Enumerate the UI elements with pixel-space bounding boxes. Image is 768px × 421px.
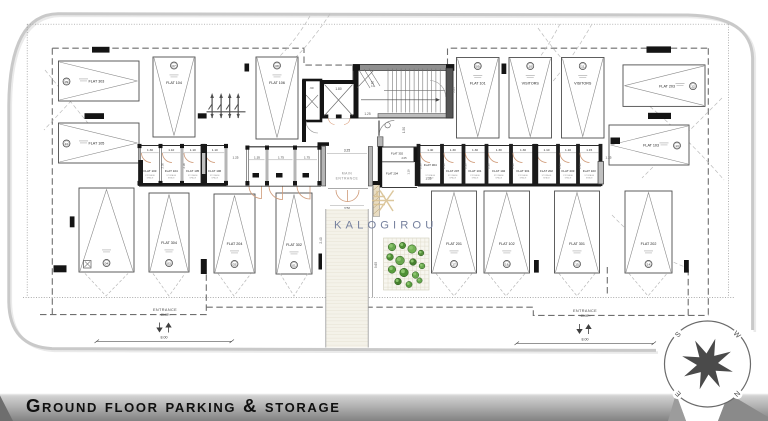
svg-text:SPACE: SPACE [472, 177, 479, 180]
svg-text:2.30: 2.30 [161, 163, 165, 169]
svg-text:1.25: 1.25 [425, 177, 431, 181]
svg-text:1.50: 1.50 [402, 127, 406, 133]
svg-text:FLAT 103: FLAT 103 [583, 169, 596, 173]
svg-text:FLAT 302: FLAT 302 [286, 243, 302, 247]
svg-text:FLAT 103: FLAT 103 [144, 169, 157, 173]
svg-text:FLAT 204: FLAT 204 [227, 242, 243, 246]
svg-text:1.35: 1.35 [254, 155, 260, 159]
svg-text:SPACE: SPACE [189, 177, 196, 180]
svg-text:SPACE: SPACE [211, 177, 218, 180]
svg-text:FLAT 204: FLAT 204 [386, 172, 398, 176]
svg-text:1.15: 1.15 [586, 148, 592, 152]
svg-text:12: 12 [691, 84, 695, 88]
svg-text:8.00: 8.00 [161, 336, 168, 340]
svg-text:FLAT 106: FLAT 106 [269, 81, 285, 85]
svg-text:2.30: 2.30 [578, 163, 582, 169]
svg-text:17: 17 [452, 262, 456, 266]
svg-text:SPACE: SPACE [449, 177, 456, 180]
svg-text:08: 08 [275, 64, 279, 68]
svg-text:07: 07 [172, 64, 176, 68]
svg-text:FLAT 304: FLAT 304 [161, 241, 177, 245]
svg-text:FLAT 101: FLAT 101 [470, 82, 486, 86]
svg-text:FLAT 104: FLAT 104 [166, 81, 182, 85]
svg-text:3.25: 3.25 [452, 87, 456, 93]
svg-text:1.75: 1.75 [278, 155, 284, 159]
svg-text:ENTRANCE: ENTRANCE [336, 177, 359, 181]
svg-text:SPACE: SPACE [586, 177, 593, 180]
svg-text:10: 10 [65, 142, 69, 146]
svg-text:FLAT 203: FLAT 203 [659, 84, 675, 88]
svg-text:FLAT 202: FLAT 202 [641, 242, 657, 246]
svg-text:11: 11 [581, 64, 584, 68]
svg-text:15: 15 [575, 262, 579, 266]
svg-text:Ground floor parking & storage: Ground floor parking & storage [26, 395, 341, 416]
svg-text:1.30: 1.30 [147, 148, 153, 152]
svg-text:2.05: 2.05 [401, 156, 407, 160]
svg-text:13: 13 [675, 144, 679, 148]
svg-text:FLAT 302: FLAT 302 [391, 152, 403, 156]
svg-text:SPACE: SPACE [543, 177, 550, 180]
svg-text:FLAT 207: FLAT 207 [446, 169, 459, 173]
svg-text:1.10: 1.10 [212, 148, 218, 152]
svg-text:10: 10 [529, 64, 533, 68]
svg-text:.60: .60 [309, 86, 314, 90]
svg-text:VISITORS: VISITORS [522, 82, 540, 86]
svg-text:MAIN: MAIN [342, 172, 353, 176]
svg-text:1.10: 1.10 [190, 148, 196, 152]
svg-text:1.40: 1.40 [427, 148, 433, 152]
svg-text:1.30: 1.30 [450, 148, 456, 152]
svg-text:SPACE: SPACE [147, 177, 154, 180]
svg-text:FLAT 105: FLAT 105 [89, 142, 105, 146]
svg-text:EXIT: EXIT [161, 313, 170, 317]
svg-text:1.80: 1.80 [335, 87, 341, 91]
svg-text:1.30: 1.30 [496, 148, 502, 152]
svg-text:16: 16 [505, 262, 509, 266]
svg-text:1.75: 1.75 [304, 155, 310, 159]
svg-text:2.30: 2.30 [442, 163, 446, 169]
svg-text:SPACE: SPACE [520, 177, 527, 180]
svg-text:2.10: 2.10 [371, 81, 375, 87]
svg-text:1.25: 1.25 [364, 112, 370, 116]
svg-text:FLAT 105: FLAT 105 [186, 169, 199, 173]
svg-text:02: 02 [233, 262, 237, 266]
svg-text:1.10: 1.10 [565, 148, 571, 152]
svg-text:1.10: 1.10 [407, 169, 411, 175]
svg-text:FLAT 106: FLAT 106 [208, 169, 221, 173]
svg-text:1.25: 1.25 [232, 156, 238, 160]
svg-text:2.30: 2.30 [182, 163, 186, 169]
svg-text:SPACE: SPACE [168, 177, 175, 180]
svg-text:VISITORS: VISITORS [574, 82, 592, 86]
svg-text:2.30: 2.30 [487, 163, 491, 169]
svg-text:FLAT 301: FLAT 301 [569, 242, 585, 246]
svg-text:9.65: 9.65 [374, 262, 378, 268]
svg-text:FLAT 102: FLAT 102 [492, 169, 505, 173]
svg-text:2.30: 2.30 [558, 163, 562, 169]
svg-text:2.40: 2.40 [319, 237, 323, 243]
svg-text:SPACE: SPACE [495, 177, 502, 180]
svg-text:09: 09 [65, 80, 69, 84]
svg-text:FLAT 303: FLAT 303 [89, 80, 105, 84]
svg-text:2.30: 2.30 [511, 163, 515, 169]
svg-text:03: 03 [167, 261, 171, 265]
svg-text:1.10: 1.10 [168, 148, 174, 152]
svg-text:FLAT 301: FLAT 301 [517, 169, 530, 173]
svg-text:09: 09 [476, 64, 480, 68]
svg-text:FLAT 101: FLAT 101 [469, 169, 482, 173]
svg-text:FLAT 201: FLAT 201 [446, 242, 462, 246]
svg-text:04: 04 [105, 261, 109, 265]
svg-text:2.30: 2.30 [464, 163, 468, 169]
svg-text:EXIT: EXIT [581, 314, 590, 318]
svg-text:14: 14 [647, 262, 651, 266]
svg-text:1.10: 1.10 [543, 148, 549, 152]
svg-text:FLAT 103: FLAT 103 [643, 144, 659, 148]
svg-text:FLAT 104: FLAT 104 [165, 169, 178, 173]
svg-text:1.25: 1.25 [605, 156, 611, 160]
svg-text:FLAT 202: FLAT 202 [540, 169, 553, 173]
svg-text:3.25: 3.25 [344, 149, 350, 153]
svg-text:8.00: 8.00 [582, 338, 589, 342]
svg-text:01: 01 [292, 263, 296, 267]
svg-text:FLAT 102: FLAT 102 [499, 242, 515, 246]
svg-text:ENTRANCE: ENTRANCE [153, 308, 177, 312]
svg-text:SPACE: SPACE [565, 177, 572, 180]
svg-text:FLAT 203: FLAT 203 [562, 169, 575, 173]
svg-text:FLAT 304: FLAT 304 [424, 163, 437, 167]
svg-text:KALOGIROU: KALOGIROU [334, 220, 437, 232]
svg-text:1.30: 1.30 [520, 148, 526, 152]
svg-text:ENTRANCE: ENTRANCE [573, 309, 597, 313]
svg-text:1.30: 1.30 [472, 148, 478, 152]
